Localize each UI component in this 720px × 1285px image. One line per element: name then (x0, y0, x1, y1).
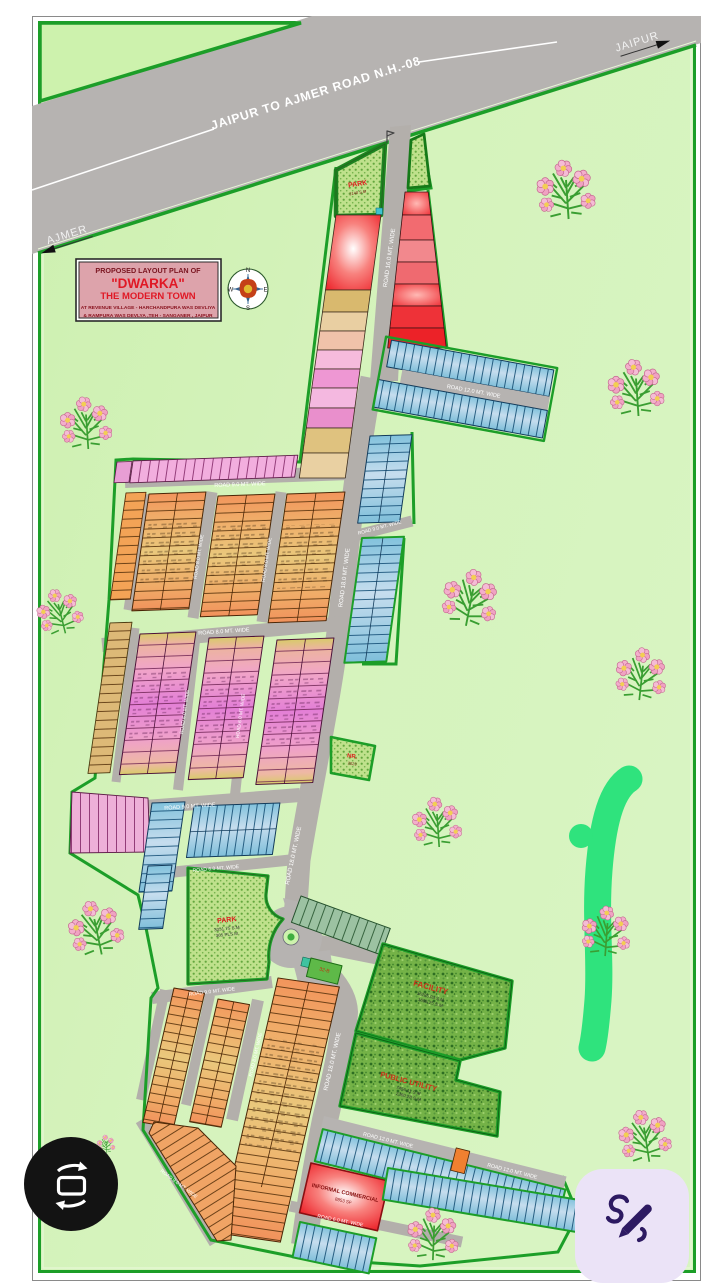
svg-text:& RAMPURA WAS DEVLYA ,TEH - SA: & RAMPURA WAS DEVLYA ,TEH - SANGANER , J… (83, 313, 213, 319)
svg-text:N: N (246, 268, 250, 274)
svg-text:AT REVENUE VILLAGE - HARCHANDP: AT REVENUE VILLAGE - HARCHANDPURA WAS DE… (81, 305, 216, 311)
svg-text:THE MODERN TOWN: THE MODERN TOWN (100, 291, 195, 302)
svg-text:S: S (246, 306, 250, 312)
svg-text:W: W (228, 288, 234, 294)
svg-text:E: E (263, 288, 267, 294)
svg-text:"DWARKA": "DWARKA" (111, 276, 185, 291)
svg-text:PROPOSED LAYOUT PLAN OF: PROPOSED LAYOUT PLAN OF (95, 266, 201, 275)
